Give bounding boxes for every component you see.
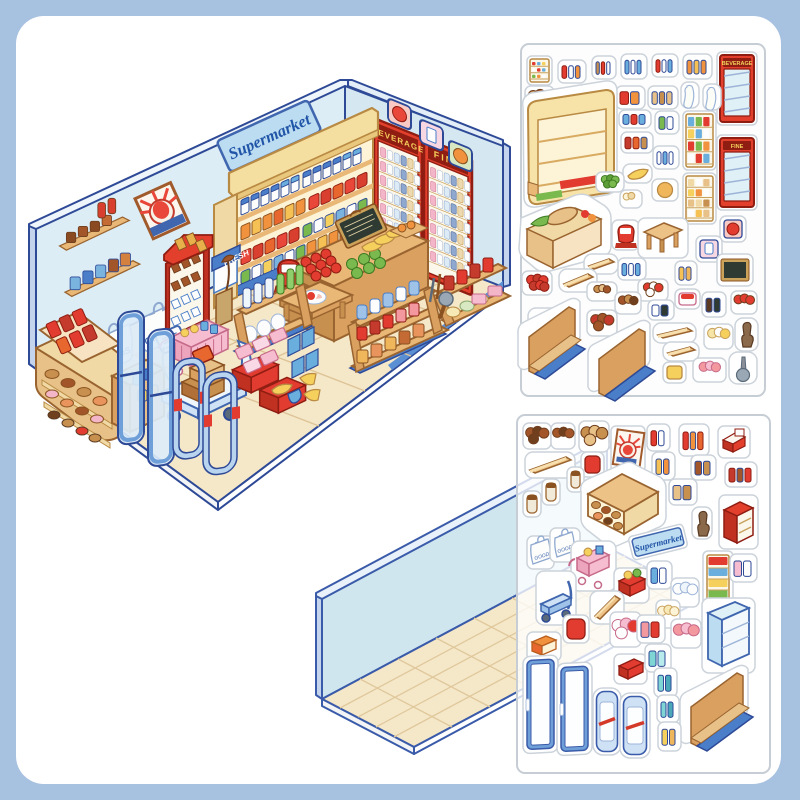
svg-text:BEVERAGE: BEVERAGE <box>722 61 753 67</box>
svg-text:FINE: FINE <box>731 144 744 150</box>
